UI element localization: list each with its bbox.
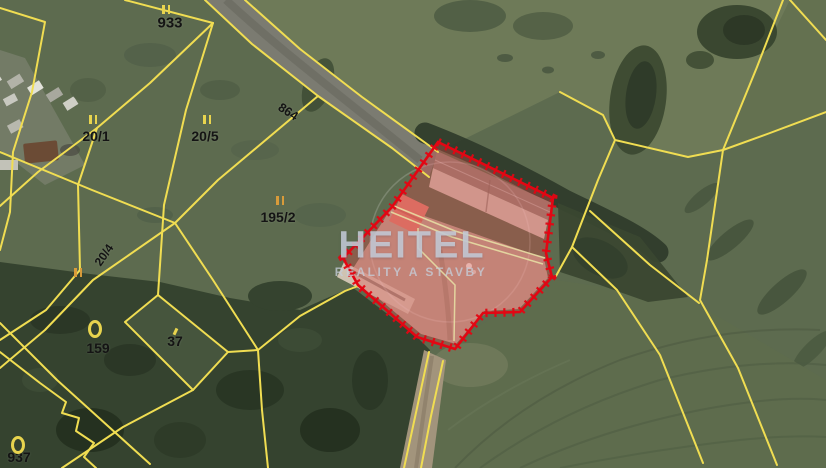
parcel-label-20-5: 20/5	[191, 129, 218, 143]
satellite-map: 933 20/1 20/5 195/2 20/4 864 159 37 937 …	[0, 0, 826, 468]
landuse-doublebar-icon	[89, 115, 97, 124]
parcel-label-37: 37	[167, 334, 183, 348]
landuse-ring-icon	[11, 436, 25, 454]
watermark-subtitle: REALITY A STAVBY	[335, 265, 487, 279]
landuse-doublebar-icon	[74, 268, 82, 277]
landuse-ring-icon	[88, 320, 102, 338]
parcel-label-933: 933	[157, 16, 182, 31]
parcel-label-20-1: 20/1	[82, 129, 109, 143]
landuse-doublebar-icon	[162, 5, 170, 14]
landuse-doublebar-icon	[203, 115, 211, 124]
parcel-label-195-2: 195/2	[260, 210, 295, 224]
watermark-title: HEITEL	[338, 225, 485, 268]
landuse-doublebar-icon	[276, 196, 284, 205]
parcel-label-159: 159	[86, 341, 109, 355]
